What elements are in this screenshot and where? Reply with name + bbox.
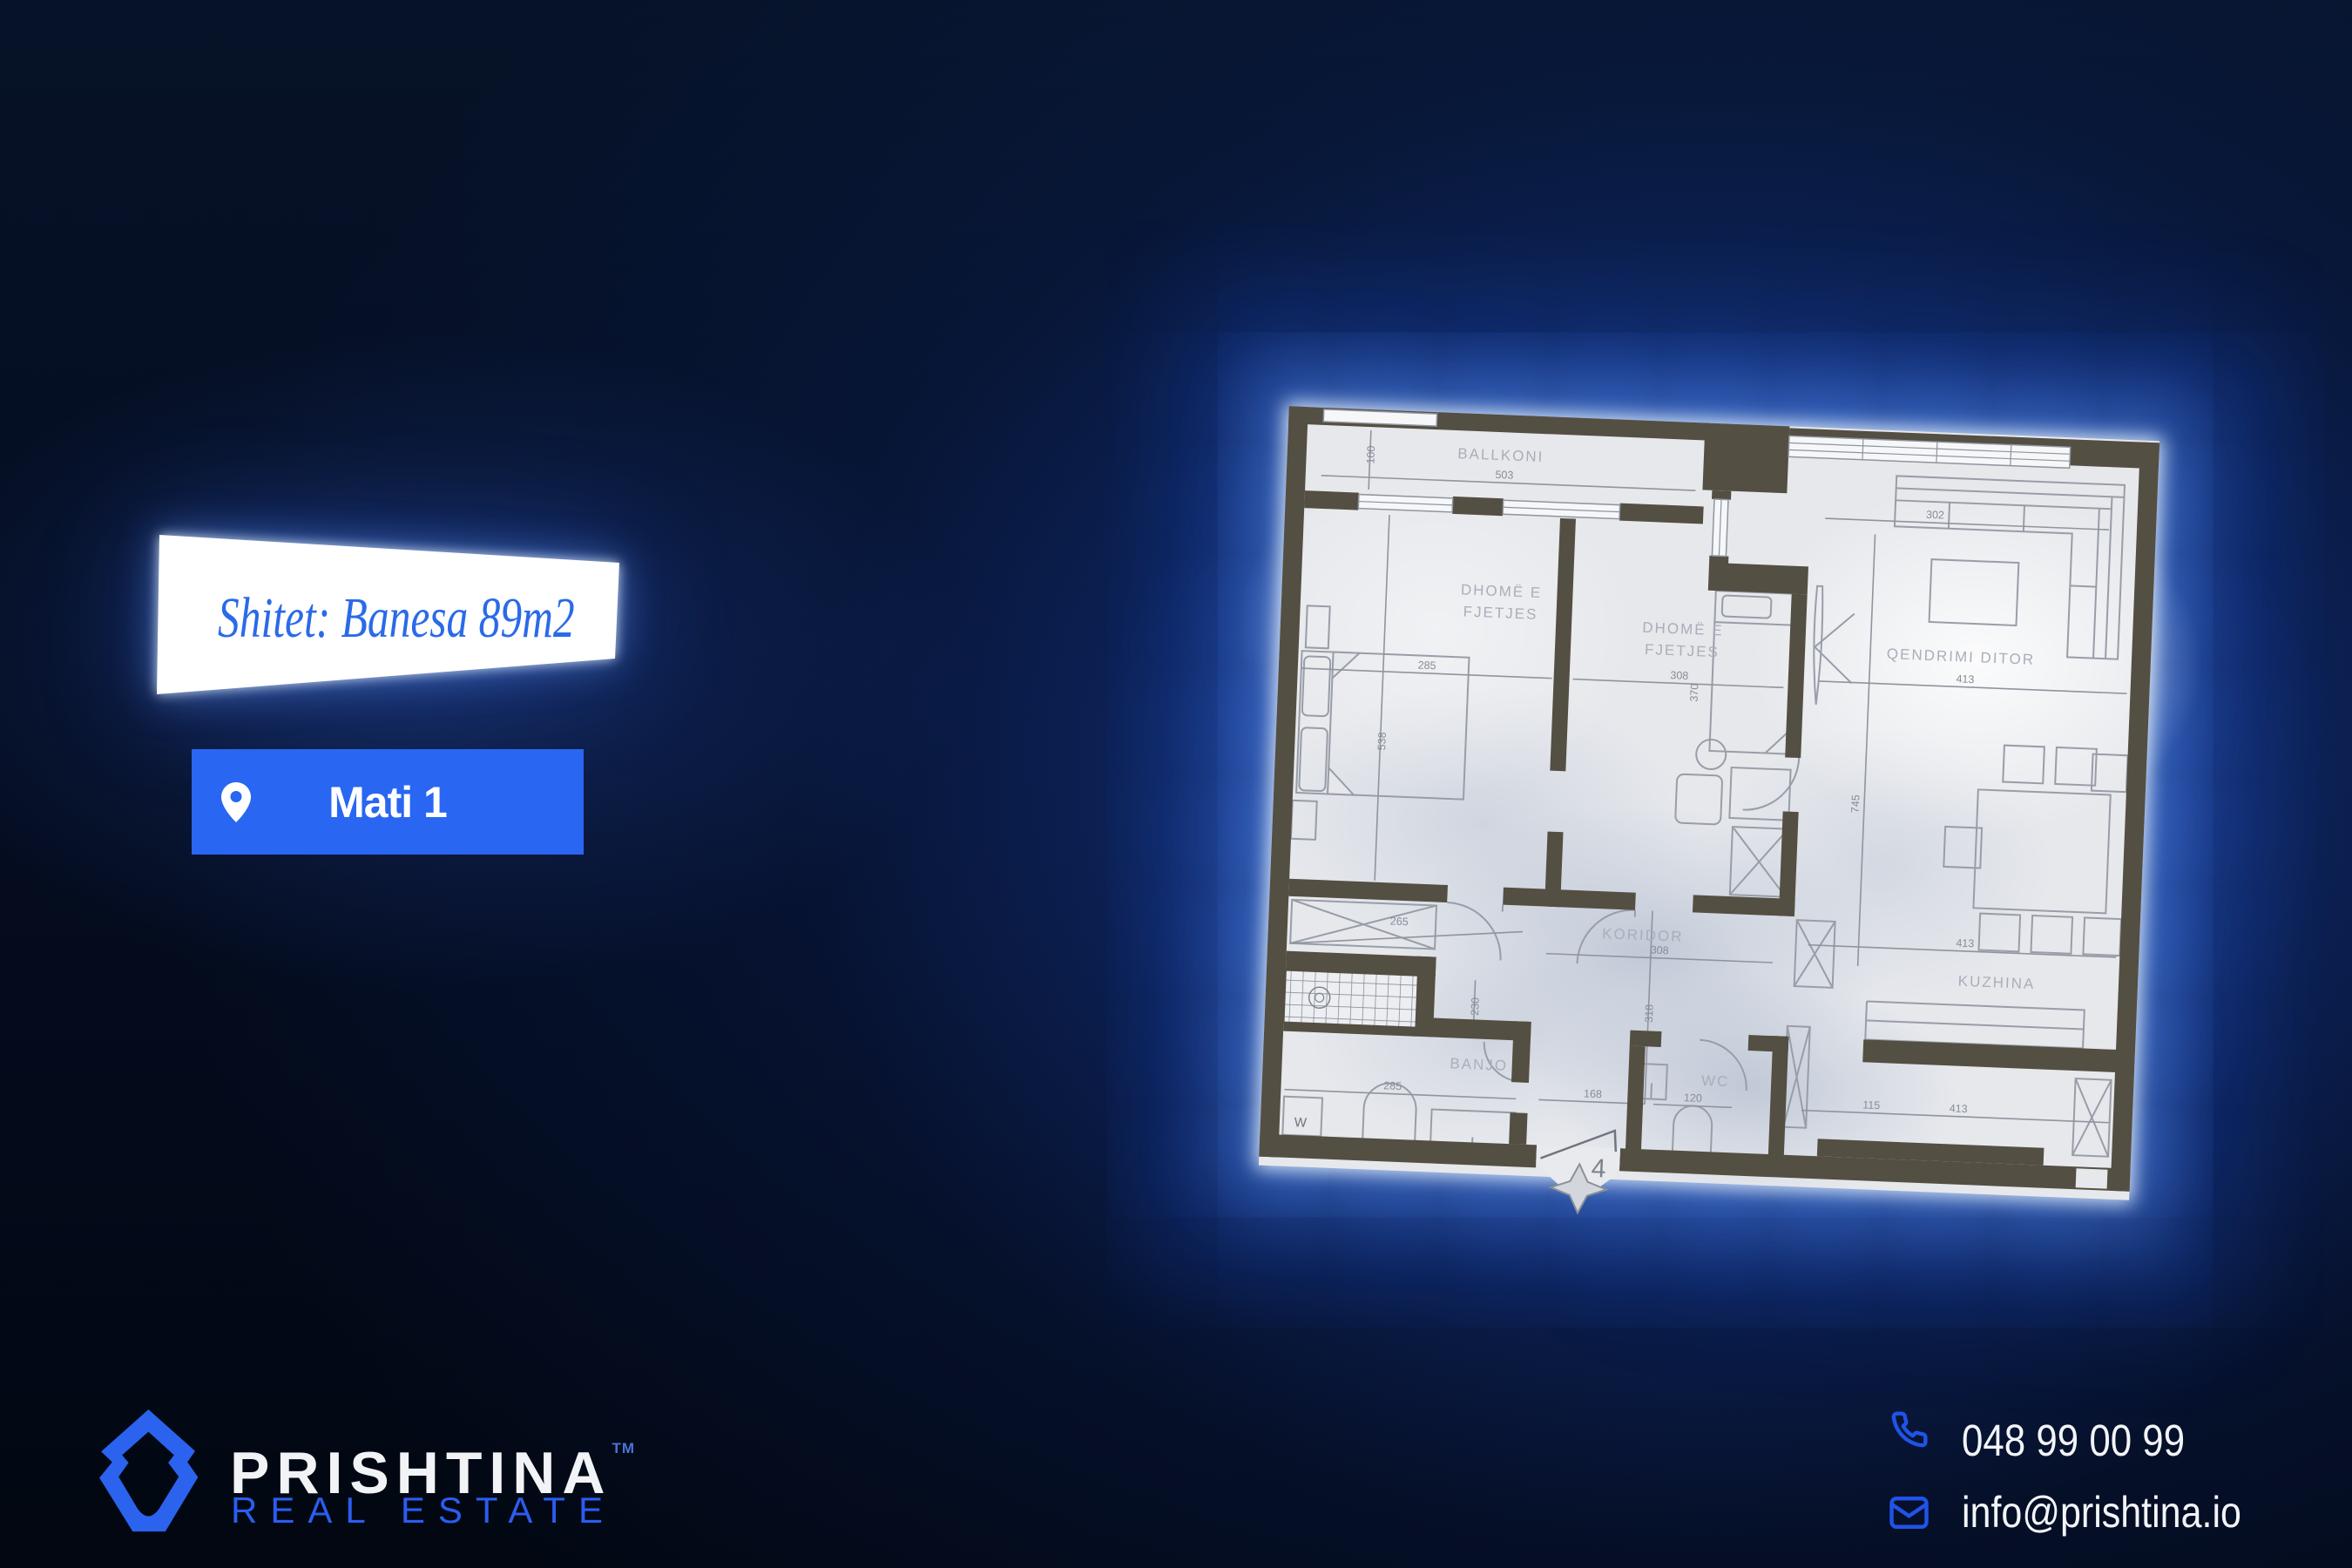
svg-text:DHOMË E: DHOMË E [1642, 619, 1724, 639]
svg-text:265: 265 [1390, 915, 1409, 928]
svg-text:230: 230 [1469, 997, 1482, 1016]
svg-text:370: 370 [1688, 683, 1701, 701]
svg-text:FJETJES: FJETJES [1645, 641, 1720, 660]
svg-text:FJETJES: FJETJES [1463, 604, 1538, 623]
svg-text:W: W [1294, 1115, 1308, 1131]
svg-text:745: 745 [1849, 794, 1862, 813]
svg-text:413: 413 [1956, 937, 1974, 950]
svg-text:302: 302 [1926, 509, 1944, 522]
svg-text:BANJO: BANJO [1450, 1055, 1508, 1074]
svg-text:KUZHINA: KUZHINA [1957, 973, 2035, 993]
svg-text:308: 308 [1670, 669, 1688, 682]
svg-text:538: 538 [1375, 732, 1389, 750]
svg-text:168: 168 [1584, 1087, 1602, 1100]
svg-text:100: 100 [1364, 445, 1377, 463]
svg-text:413: 413 [1956, 672, 1974, 686]
svg-text:120: 120 [1684, 1092, 1702, 1105]
svg-text:413: 413 [1949, 1102, 1967, 1115]
svg-text:WC: WC [1701, 1072, 1730, 1090]
svg-text:318: 318 [1643, 1004, 1656, 1023]
svg-text:285: 285 [1417, 659, 1436, 672]
svg-text:115: 115 [1862, 1098, 1881, 1112]
svg-text:KORIDOR: KORIDOR [1602, 925, 1684, 945]
svg-text:4: 4 [1591, 1154, 1606, 1184]
svg-text:308: 308 [1650, 943, 1668, 956]
svg-text:503: 503 [1495, 469, 1513, 482]
svg-text:DHOMË E: DHOMË E [1461, 581, 1543, 601]
svg-text:BALLKONI: BALLKONI [1457, 445, 1544, 465]
svg-text:285: 285 [1383, 1079, 1402, 1092]
